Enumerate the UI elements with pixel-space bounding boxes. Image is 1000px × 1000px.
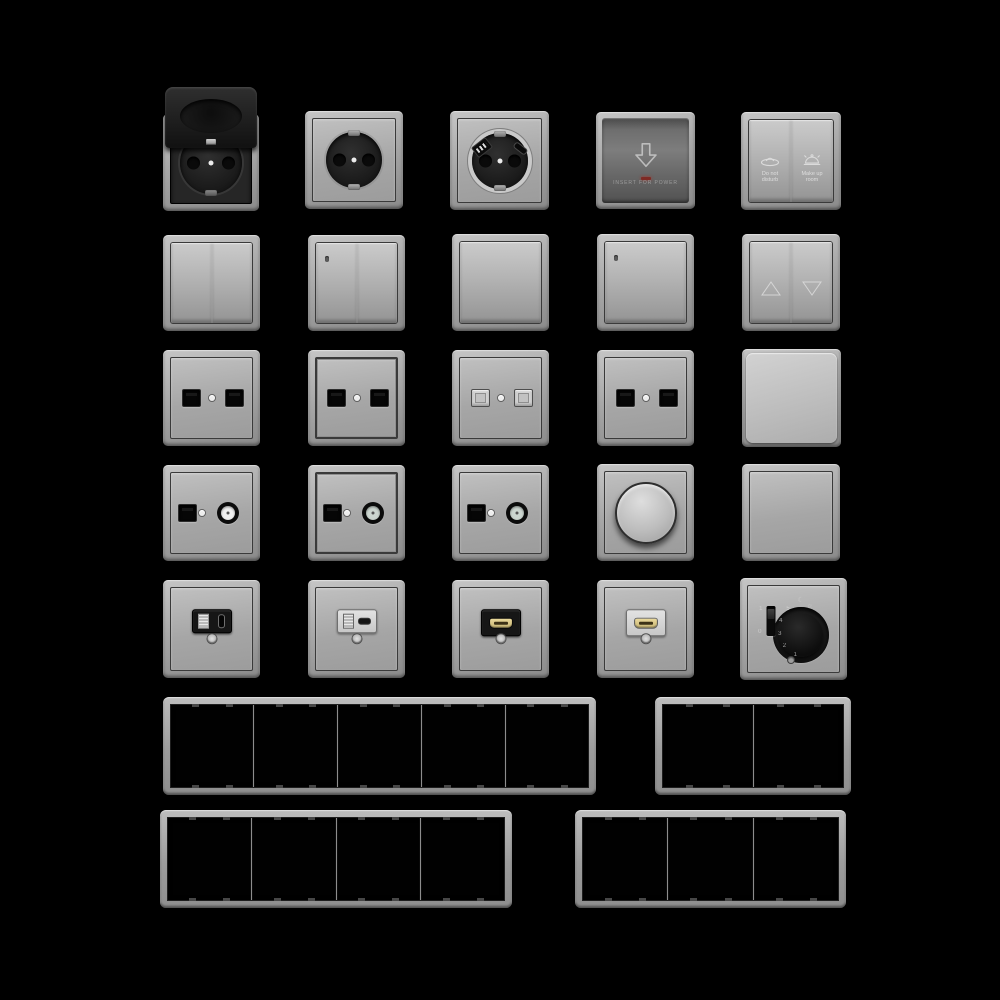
mounting-claw <box>814 785 821 788</box>
coax-pin <box>515 512 518 515</box>
mounting-claw <box>776 817 783 820</box>
rocker-area <box>170 242 253 324</box>
frame-openings <box>167 817 505 901</box>
mounting-claw <box>527 785 534 788</box>
blank-plate <box>742 464 840 561</box>
double-rocker-switch <box>163 235 260 331</box>
rocker-area <box>459 241 542 324</box>
dual-data-outlet-black-1 <box>163 350 260 446</box>
down-arrow-icon <box>631 140 661 170</box>
outlet-plate <box>452 465 549 561</box>
rocker-right <box>212 243 253 323</box>
usb-module-area <box>192 609 232 645</box>
mounting-claw <box>444 785 451 788</box>
frame-opening <box>338 704 422 788</box>
frame-opening <box>254 704 338 788</box>
socket-inner <box>312 118 396 202</box>
socket-plate <box>305 111 403 209</box>
gang-divider <box>419 818 422 900</box>
outlet-plate <box>163 580 260 678</box>
mounting-claw <box>725 898 732 901</box>
frame-openings <box>170 704 589 788</box>
dial-number: 2 <box>783 643 786 649</box>
outlet-inner <box>170 357 253 439</box>
data-jack-right <box>370 389 389 407</box>
mounting-claw <box>776 898 783 901</box>
mounting-claw <box>725 817 732 820</box>
thermostat-slider <box>766 606 775 636</box>
gang-divider <box>504 705 507 787</box>
socket-hole-right <box>222 156 235 169</box>
schuko-usb-socket <box>450 111 549 210</box>
mounting-claw <box>274 898 281 901</box>
push-face <box>746 353 837 443</box>
mounting-claw <box>777 704 784 707</box>
outlet-plate <box>163 465 260 561</box>
rocker-area <box>749 241 833 324</box>
data-jack <box>178 504 197 522</box>
mounting-claw <box>274 817 281 820</box>
center-screw <box>344 510 350 516</box>
hotel-service-switch: Do not disturbMake up room <box>741 112 841 210</box>
dial-number: 1 <box>794 652 797 658</box>
socket-clip-bottom <box>494 185 506 191</box>
outlet-inner <box>459 587 542 671</box>
outlet-inner <box>604 587 687 671</box>
cover-latch <box>206 139 216 145</box>
frame-surround <box>575 810 846 908</box>
socket-center-pin <box>209 160 214 165</box>
socket-clip-bottom <box>348 184 360 190</box>
mounting-claw <box>477 898 484 901</box>
thermostat-slider-knob <box>767 609 774 619</box>
gang-divider <box>666 818 669 900</box>
mounting-claw <box>358 898 365 901</box>
thermostat-inner: 5432110☾☼ <box>747 585 840 673</box>
outlet-inner <box>315 472 398 554</box>
keycard-plate: INSERT FOR POWER <box>596 112 695 209</box>
flip-cover <box>165 87 257 148</box>
mounting-claw <box>189 817 196 820</box>
outlet-inner <box>170 472 253 554</box>
screw-icon <box>641 634 650 643</box>
outlet-plate <box>452 350 549 446</box>
outlet-plate <box>163 350 260 446</box>
frame-opening <box>582 817 668 901</box>
socket-hole-right <box>362 154 375 167</box>
slider-mark-off: 0 <box>758 629 761 635</box>
gang-divider <box>335 818 338 900</box>
thermostat-dial: 5432110☾☼ <box>740 578 847 680</box>
coax-pin <box>371 512 374 515</box>
mounting-claw <box>308 817 315 820</box>
blank-inner <box>749 471 833 554</box>
tv-data-outlet-3 <box>452 465 549 561</box>
outlet-plate <box>308 350 405 446</box>
mounting-claw <box>309 704 316 707</box>
mounting-claw <box>527 704 534 707</box>
mounting-claw <box>192 785 199 788</box>
socket-hole-left <box>187 156 200 169</box>
frame-opening <box>753 817 839 901</box>
rocker <box>460 242 541 323</box>
mounting-claw <box>686 704 693 707</box>
rocker-area: Do not disturbMake up room <box>748 119 834 203</box>
dual-data-outlet-black-2 <box>308 350 405 446</box>
mounting-claw <box>226 785 233 788</box>
frame-opening <box>668 817 754 901</box>
mounting-claw <box>686 785 693 788</box>
schuko-socket <box>305 111 403 209</box>
cover-recess <box>180 99 242 133</box>
tv-data-outlet-2 <box>308 465 405 561</box>
coax-connector <box>362 502 384 524</box>
mounting-claw <box>477 704 484 707</box>
mounting-claw <box>723 785 730 788</box>
dial-number: 4 <box>779 618 782 624</box>
usb-a-port-icon <box>343 614 354 629</box>
mounting-claw <box>223 817 230 820</box>
socket-clip-top <box>494 131 506 137</box>
indicator-led <box>325 256 329 262</box>
push-plate <box>742 349 841 447</box>
up-triangle-icon <box>760 279 782 297</box>
outlet-inner <box>459 472 542 554</box>
mounting-claw <box>690 817 697 820</box>
mounting-claw <box>360 704 367 707</box>
mounting-claw <box>360 785 367 788</box>
outlet-plate <box>597 350 694 446</box>
mounting-claw <box>276 704 283 707</box>
frame-opening <box>505 704 589 788</box>
rocker-area <box>315 242 398 324</box>
socket-plate <box>450 111 549 210</box>
mounting-claw <box>810 898 817 901</box>
data-jack-left <box>616 389 635 407</box>
outlet-inner <box>170 587 253 671</box>
mounting-claw <box>561 785 568 788</box>
outlet-plate <box>597 580 694 678</box>
frame-surround <box>160 810 512 908</box>
frame-opening <box>421 817 506 901</box>
frame-surround <box>163 697 596 795</box>
dimmer-plate <box>597 464 694 561</box>
coax-pin <box>226 512 229 515</box>
frame-opening <box>753 704 844 788</box>
switch-plate <box>742 234 840 331</box>
mounting-claw <box>443 817 450 820</box>
frame-openings <box>582 817 839 901</box>
frame-opening <box>336 817 421 901</box>
switch-plate <box>163 235 260 331</box>
dual-data-outlet-white <box>452 350 549 446</box>
socket-inner <box>457 118 542 203</box>
mounting-claw <box>226 704 233 707</box>
frame-opening <box>167 817 252 901</box>
switch-plate <box>452 234 549 331</box>
service-bell-icon <box>801 151 823 167</box>
rocker-do-not-disturb: Do not disturb <box>749 120 792 202</box>
frame-opening <box>421 704 505 788</box>
mounting-claw <box>393 785 400 788</box>
frame-5-gang <box>163 697 596 795</box>
single-rocker-switch <box>452 234 549 331</box>
keycard-face: INSERT FOR POWER <box>602 118 689 203</box>
socket-clip-bottom <box>205 190 217 196</box>
switch-plate <box>597 234 694 331</box>
bottom-screw <box>788 657 794 663</box>
center-screw <box>643 395 649 401</box>
frame-opening <box>662 704 753 788</box>
down-triangle-icon <box>801 279 823 297</box>
mounting-claw <box>810 817 817 820</box>
center-screw <box>209 395 215 401</box>
mounting-claw <box>443 898 450 901</box>
gang-divider <box>250 818 253 900</box>
hdmi-module-area <box>626 609 666 645</box>
hdmi-outlet-white <box>597 580 694 678</box>
rocker <box>605 242 686 323</box>
outlet-inner <box>315 357 398 439</box>
mounting-claw <box>690 898 697 901</box>
mounting-claw <box>393 704 400 707</box>
rocker-left <box>316 243 358 323</box>
hdmi-port-icon <box>490 618 512 627</box>
usb-module <box>192 609 232 633</box>
tv-data-outlet-1 <box>163 465 260 561</box>
hdmi-module <box>626 609 666 636</box>
dial-number: 3 <box>778 631 781 637</box>
mounting-claw <box>561 704 568 707</box>
single-rocker-switch-indicator <box>597 234 694 331</box>
mounting-claw <box>276 785 283 788</box>
rocker-left <box>750 242 792 323</box>
power-led <box>641 177 651 180</box>
mounting-claw <box>605 817 612 820</box>
frame-opening <box>252 817 337 901</box>
do-not-disturb-icon <box>759 151 781 167</box>
mounting-claw <box>639 898 646 901</box>
mounting-claw <box>814 704 821 707</box>
outlet-plate <box>452 580 549 678</box>
usb-module-area <box>337 609 377 645</box>
outlet-plate <box>308 580 405 678</box>
sun-icon: ☼ <box>807 602 813 609</box>
mounting-claw <box>308 898 315 901</box>
usb-charger-outlet-black <box>163 580 260 678</box>
data-jack <box>467 504 486 522</box>
data-jack-left <box>182 389 201 407</box>
rocker-right <box>791 242 832 323</box>
hdmi-module-area <box>481 609 521 645</box>
gang-divider <box>336 705 339 787</box>
do-not-disturb-label: Do not disturb <box>755 171 785 184</box>
mounting-claw <box>189 898 196 901</box>
mounting-claw <box>192 704 199 707</box>
socket-recess <box>326 132 382 188</box>
data-jack-right <box>514 389 533 407</box>
mounting-claw <box>777 785 784 788</box>
make-up-room-label: Make up room <box>797 171 827 184</box>
screw-icon <box>496 634 505 643</box>
blank-plate <box>742 464 840 561</box>
keycard-label: INSERT FOR POWER <box>602 180 689 186</box>
mounting-claw <box>309 785 316 788</box>
gang-divider <box>420 705 423 787</box>
data-jack-left <box>471 389 490 407</box>
slider-mark-on: 1 <box>759 606 762 612</box>
mounting-claw <box>477 817 484 820</box>
usb-a-port-icon <box>198 614 209 629</box>
moon-icon: ☾ <box>798 596 804 604</box>
screw-icon <box>352 634 361 643</box>
data-jack <box>323 504 342 522</box>
frame-4-gang <box>160 810 512 908</box>
mounting-claw <box>723 704 730 707</box>
switch-plate <box>308 235 405 331</box>
frame-2-gang <box>655 697 851 795</box>
screw-icon <box>207 634 216 643</box>
shutter-switch <box>742 234 840 331</box>
socket-hole-left <box>333 154 346 167</box>
gang-divider <box>252 705 255 787</box>
flat-push-plate <box>742 349 841 447</box>
outlet-inner <box>315 587 398 671</box>
hdmi-port-icon <box>635 618 657 627</box>
frame-surround <box>655 697 851 795</box>
data-jack-right <box>225 389 244 407</box>
thermostat-knob <box>779 613 823 657</box>
keycard-power-switch: INSERT FOR POWER <box>596 112 695 209</box>
socket-clip-top <box>348 130 360 136</box>
frame-openings <box>662 704 844 788</box>
outlet-inner <box>604 357 687 439</box>
center-screw <box>498 395 504 401</box>
coax-connector <box>506 502 528 524</box>
outlet-plate <box>308 465 405 561</box>
thermostat-plate: 5432110☾☼ <box>740 578 847 680</box>
mounting-claw <box>392 898 399 901</box>
mounting-claw <box>392 817 399 820</box>
hdmi-outlet-black <box>452 580 549 678</box>
hdmi-module <box>481 609 521 636</box>
rotary-dimmer <box>597 464 694 561</box>
frame-opening <box>170 704 254 788</box>
usb-module <box>337 609 377 633</box>
center-screw <box>488 510 494 516</box>
mounting-claw <box>477 785 484 788</box>
socket-flip-cover <box>163 87 259 211</box>
socket-hole-right <box>508 154 521 167</box>
gang-divider <box>752 705 755 787</box>
data-jack-right <box>659 389 678 407</box>
mounting-claw <box>605 898 612 901</box>
center-screw <box>354 395 360 401</box>
rocker-make-up-room: Make up room <box>791 120 833 202</box>
mounting-claw <box>223 898 230 901</box>
switch-plate: Do not disturbMake up room <box>741 112 841 210</box>
socket-center-pin <box>497 158 502 163</box>
socket-center-pin <box>352 158 357 163</box>
switch-socket-product-grid: INSERT FOR POWERDo not disturbMake up ro… <box>0 0 1000 1000</box>
dual-data-outlet-black-3 <box>597 350 694 446</box>
frame-3-gang <box>575 810 846 908</box>
usb-c-port-icon <box>358 618 371 625</box>
mounting-claw <box>639 817 646 820</box>
outlet-inner <box>459 357 542 439</box>
usb-charger-outlet-white <box>308 580 405 678</box>
indicator-led <box>614 255 618 261</box>
double-rocker-switch-indicator <box>308 235 405 331</box>
center-screw <box>199 510 205 516</box>
dimmer-inner <box>604 471 687 554</box>
gang-divider <box>752 818 755 900</box>
mounting-claw <box>444 704 451 707</box>
data-jack-left <box>327 389 346 407</box>
mounting-claw <box>358 817 365 820</box>
rocker-right <box>357 243 398 323</box>
usb-c-port-icon <box>218 614 225 628</box>
rocker-left <box>171 243 213 323</box>
rocker-area <box>604 241 687 324</box>
dial-number: 5 <box>786 606 789 612</box>
dimmer-knob <box>615 482 677 544</box>
coax-connector <box>217 502 239 524</box>
